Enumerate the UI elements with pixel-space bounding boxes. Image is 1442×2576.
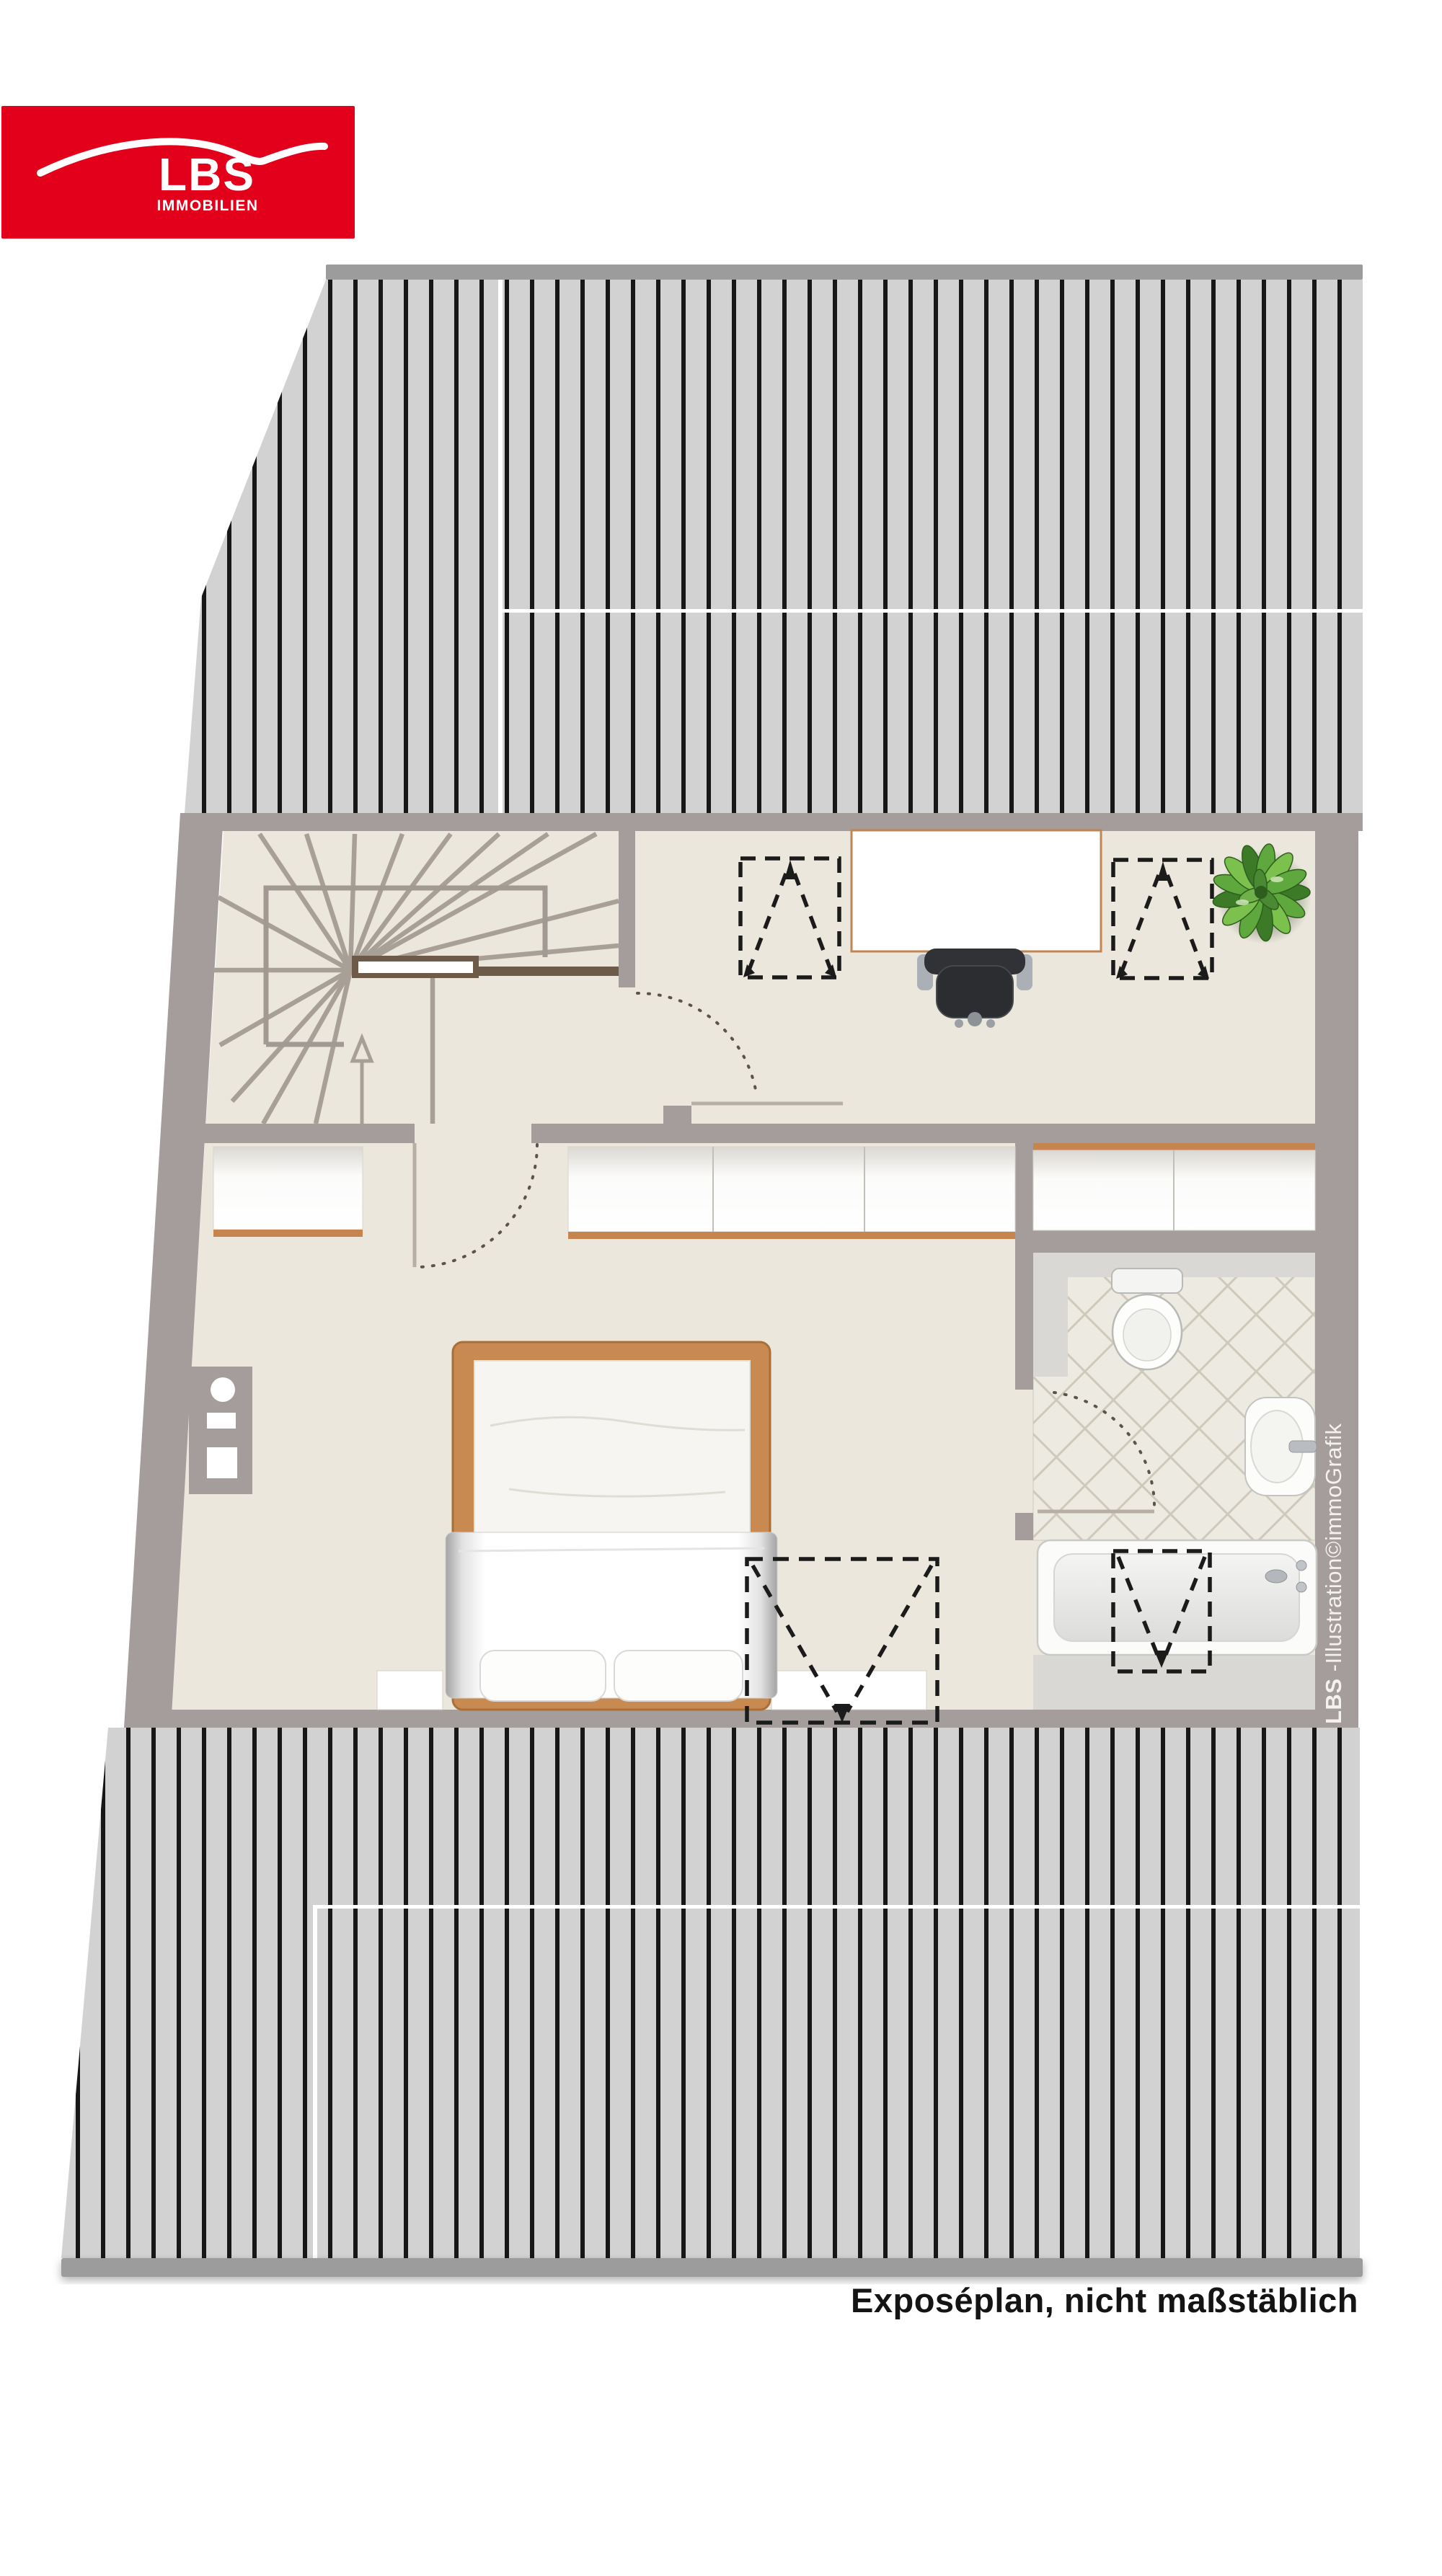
lbs-logo: LBS IMMOBILIEN [1,106,355,239]
bathroom-kneewall-strip-bottom [1033,1655,1315,1710]
roof-seam-vertical-bottom [313,1909,317,2258]
toilet-icon [1112,1269,1182,1369]
wall-landing-stub [619,831,635,987]
wardrobe-hall-wood-edge [568,1232,1015,1239]
sink-icon [1245,1398,1317,1496]
tub-spout [1265,1570,1287,1583]
kneewall-niche [771,1671,926,1710]
wall-bathroom-north [1015,1230,1358,1253]
roof-eave-bar-bottom [61,2258,1363,2277]
roof-slope-top [185,265,1363,813]
stairwell-edge-inset [358,961,473,973]
desk [852,830,1101,951]
credit-rest: -Illustration©immoGrafik [1321,1423,1346,1671]
roof-ridge-bar-top [326,265,1363,280]
logo-brand-text: LBS [159,148,255,200]
wall-bathroom-west [1015,1143,1033,1390]
wall-stair-south-left [203,1124,415,1143]
floorplan-drawing: LBS IMMOBILIEN [0,0,1442,2576]
illustration-credit: LBS -Illustration©immoGrafik [1321,1423,1346,1724]
wall-hall-south [531,1124,1315,1143]
tub-knob [1296,1560,1306,1571]
wardrobe-left [213,1147,363,1230]
kneewall-niche [377,1671,443,1710]
stairwell-rail [479,967,619,976]
sink-faucet [1289,1441,1317,1452]
wall-bathroom-west-stub [1015,1513,1033,1540]
bed-pillow [480,1651,606,1701]
wardrobe-hall [568,1147,1015,1232]
roof-hatch-top [185,280,1363,813]
bathtub-icon [1038,1540,1317,1655]
floorplan-page: LBS IMMOBILIEN [0,0,1442,2576]
roof-seam-horizontal-bottom [313,1905,1360,1909]
roof-seam-vertical-top [498,280,503,813]
logo-sub-text: IMMOBILIEN [157,197,259,214]
chimney-icon [189,1367,252,1494]
wall-south [126,1710,1358,1728]
bed-icon [446,1342,777,1710]
roof-seam-horizontal-top [500,609,1363,613]
tub-knob [1296,1582,1306,1592]
bathroom-kneewall-strip-left [1033,1277,1068,1377]
credit-bold: LBS [1321,1679,1346,1725]
roof-slope-bottom [61,1728,1363,2277]
plan-caption: Exposéplan, nicht maßstäblich [851,2281,1358,2319]
wardrobe-left-wood-edge [213,1230,363,1237]
wall-north [180,813,1363,831]
bed-mattress [474,1361,750,1547]
bed-pillow [614,1651,743,1701]
wardrobe-bath-wood-edge [1033,1143,1315,1150]
wall-door-stub [663,1106,691,1143]
roof-hatch-bottom [61,1728,1360,2258]
